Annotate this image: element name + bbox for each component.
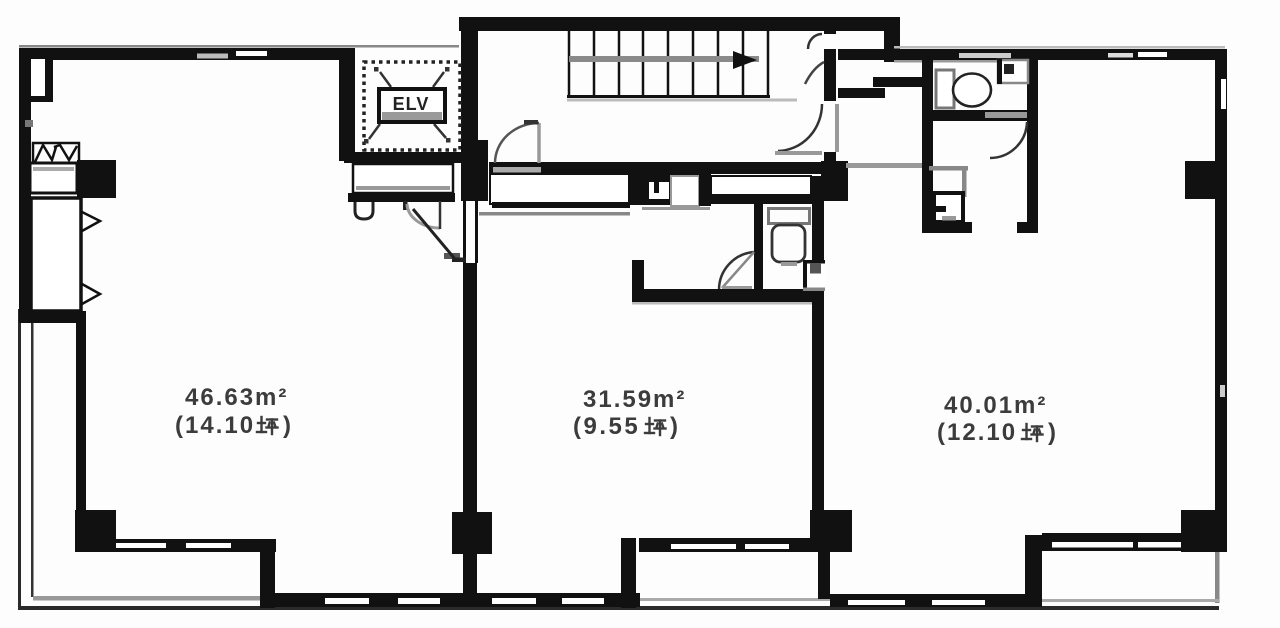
svg-text:46.63m²: 46.63m² — [185, 384, 288, 411]
svg-text:ELV: ELV — [393, 94, 430, 114]
svg-text:): ) — [1048, 419, 1056, 446]
svg-text:(14.10: (14.10 — [175, 412, 255, 439]
svg-text:): ) — [283, 412, 291, 439]
svg-text:31.59m²: 31.59m² — [583, 386, 686, 413]
svg-text:40.01m²: 40.01m² — [944, 392, 1047, 419]
svg-text:(12.10: (12.10 — [937, 419, 1017, 446]
svg-text:): ) — [670, 413, 678, 440]
svg-text:(9.55: (9.55 — [573, 413, 640, 440]
